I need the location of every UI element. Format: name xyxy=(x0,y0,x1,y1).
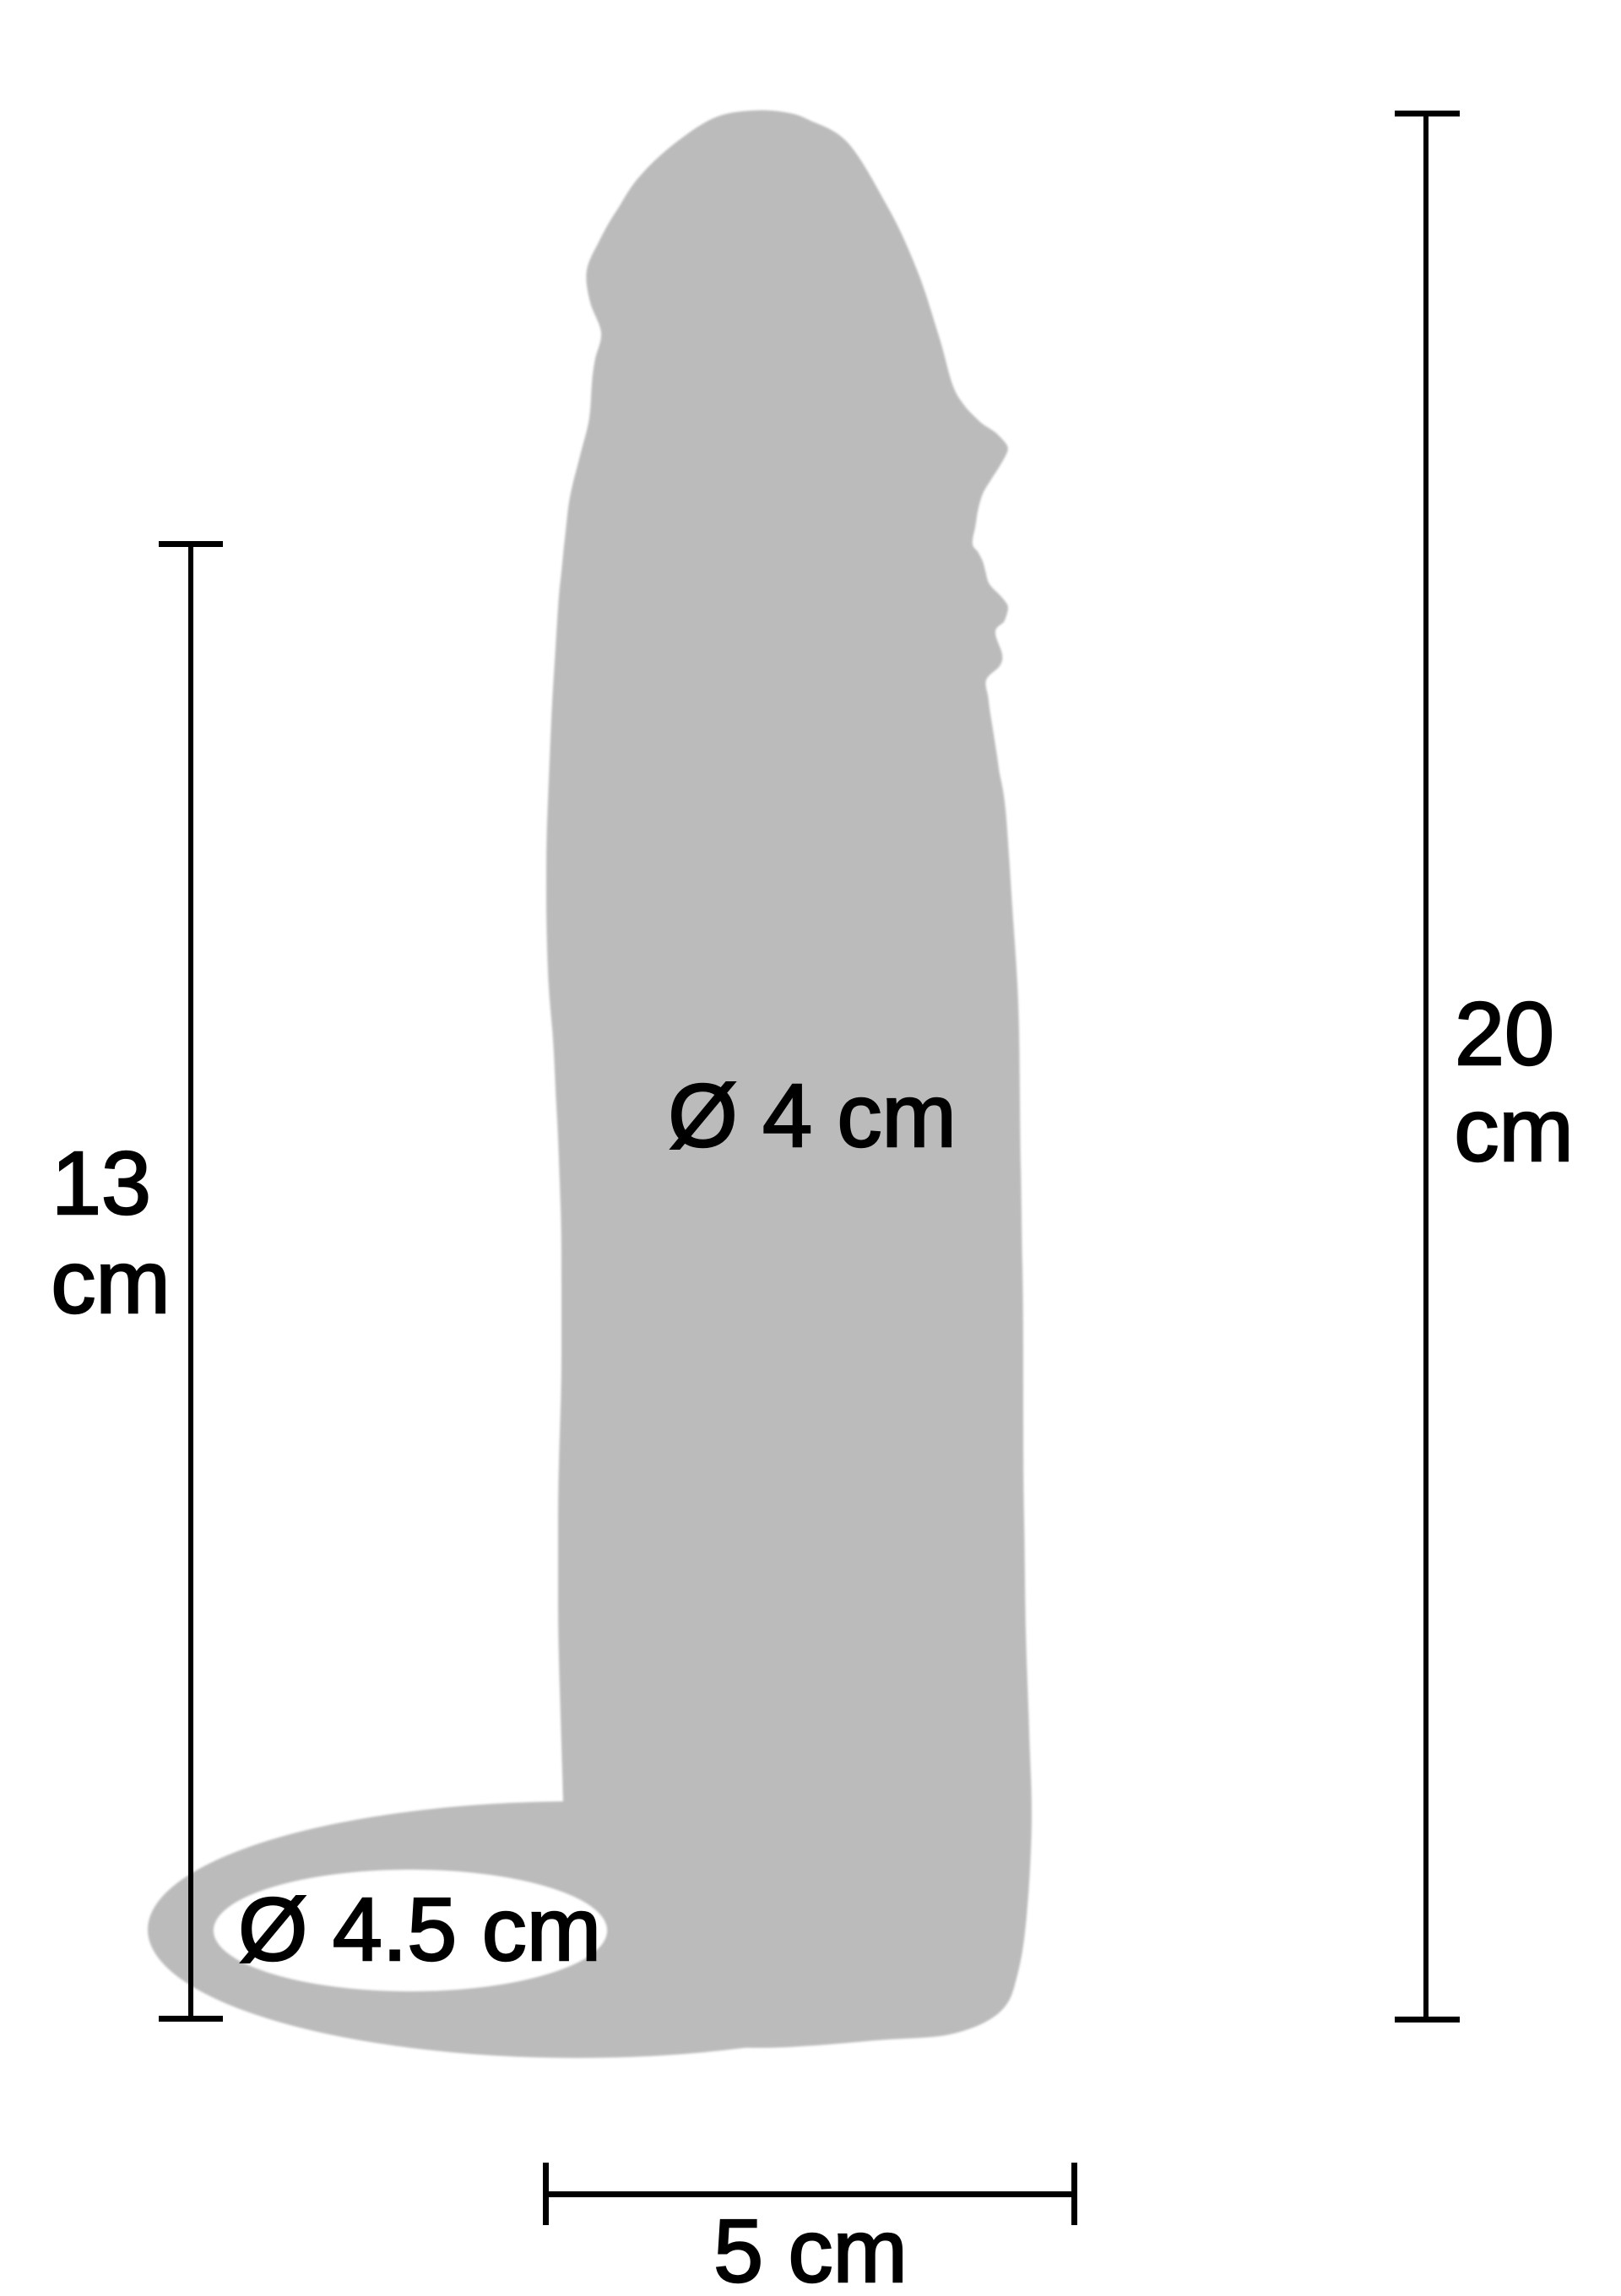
svg-text:5 cm: 5 cm xyxy=(713,2201,908,2296)
svg-text:cm: cm xyxy=(51,1232,170,1332)
svg-text:Ø 4 cm: Ø 4 cm xyxy=(668,1066,957,1166)
svg-text:13: 13 xyxy=(52,1134,151,1233)
svg-text:cm: cm xyxy=(1454,1080,1573,1180)
svg-text:Ø 4.5 cm: Ø 4.5 cm xyxy=(238,1880,601,1979)
svg-text:20: 20 xyxy=(1455,984,1554,1084)
